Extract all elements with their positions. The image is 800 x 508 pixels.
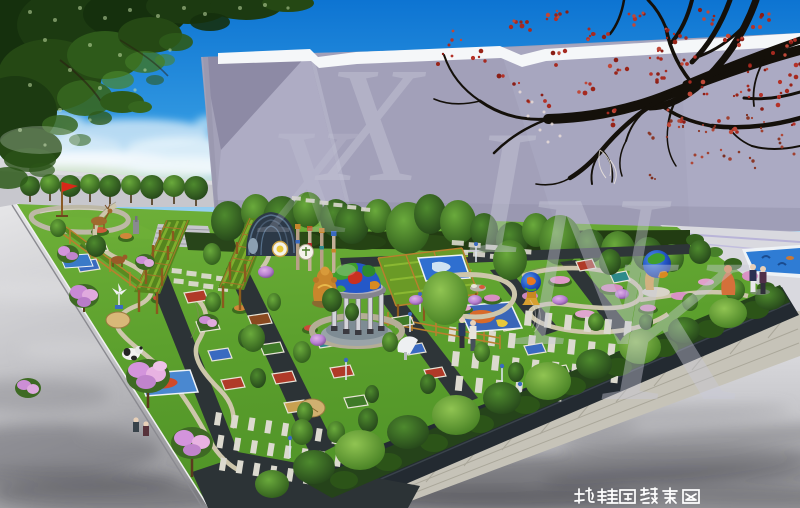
svg-text:K: K <box>601 217 750 444</box>
svg-text:X: X <box>257 99 359 265</box>
